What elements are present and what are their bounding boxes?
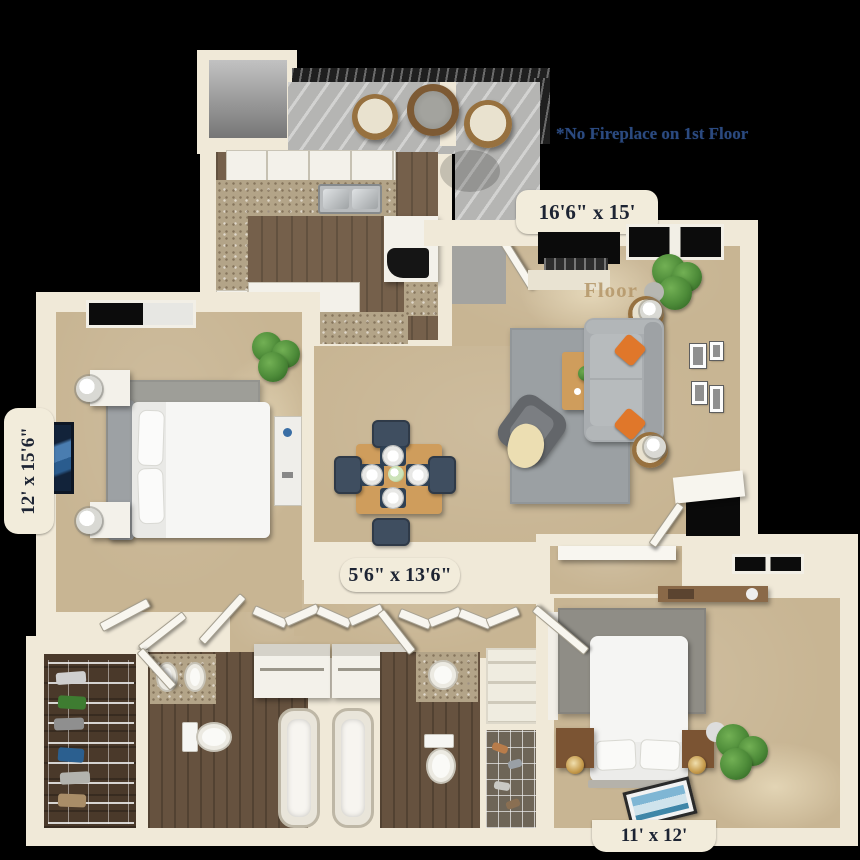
closet-clothes-3 [54, 717, 84, 730]
floor-plan: 5'6" x 13'6" 16'6" x 15' Floor [0, 0, 860, 860]
kitchen-sink [318, 184, 382, 214]
master-lamp-south [76, 508, 102, 534]
bedroom-two-wall-shelf [658, 586, 768, 602]
bedroom-two-closet-shelf [558, 546, 676, 560]
kitchen-counter-left [216, 214, 248, 292]
washer-door-slot [260, 668, 324, 671]
sofa-seat-split [590, 378, 642, 380]
master-dresser [274, 416, 302, 506]
balcony-shadow [440, 150, 500, 192]
bedroom-two-lamp-left [566, 756, 584, 774]
hall-toilet-bowl [426, 748, 456, 784]
master-pillow-bottom [137, 468, 165, 525]
hallway-dimension-tab: 5'6" x 13'6" [340, 558, 460, 592]
hallway-dimension-label: 5'6" x 13'6" [348, 564, 451, 587]
side-table-south-lamp [644, 436, 666, 458]
master-bedroom-dimension-label: 12' x 15'6" [18, 427, 40, 515]
hall-toilet-tank [424, 734, 454, 748]
shelf-round-item [746, 588, 758, 600]
sink-bowl-left [323, 189, 349, 209]
exterior-nook-window [732, 554, 804, 574]
hall-bathtub [332, 708, 374, 828]
master-bedroom-dimension-tab: 12' x 15'6" [4, 408, 54, 534]
patio-chair-left [352, 94, 398, 140]
wall-art-frame-2 [710, 342, 723, 360]
master-pillow-top [137, 410, 165, 467]
plate-east [408, 465, 428, 485]
entry-floor [452, 240, 506, 304]
coat-closet-opening [686, 496, 740, 536]
dining-chair-east [428, 456, 456, 494]
storage-shaft-interior [209, 60, 287, 144]
plate-north [383, 446, 403, 466]
closet-clothes-5 [60, 771, 91, 785]
bedroom-two-bed [590, 636, 688, 782]
fireplace-note: *No Fireplace on 1st Floor [556, 124, 748, 144]
master-bathtub-basin [287, 719, 311, 817]
master-lamp-north [76, 376, 102, 402]
dresser-item-1 [283, 428, 292, 437]
master-plant-leaf-3 [258, 352, 288, 382]
dining-centerpiece [388, 466, 404, 482]
sofa [584, 318, 664, 442]
living-room-east-wall [740, 228, 758, 548]
plate-south [383, 488, 403, 508]
hall-bathtub-basin [341, 719, 365, 817]
coffee-table-cup-1 [574, 388, 581, 395]
dining-chair-west [334, 456, 362, 494]
plate-west [362, 465, 382, 485]
living-room-dimension-label: 16'6" x 15' [539, 200, 636, 225]
kitchen-upper-cabinets [226, 150, 396, 182]
master-bed [132, 402, 270, 538]
master-bathtub [278, 708, 320, 828]
closet-clothes-4 [58, 747, 85, 763]
master-sink-right [184, 662, 206, 692]
closet-bath-divider-wall [136, 650, 148, 846]
patio-chair-right [464, 100, 512, 148]
sink-bowl-right [352, 189, 378, 209]
bedroom-two-pillow-right [639, 739, 681, 771]
bedroom-two-dimension-label: 11' x 12' [621, 825, 688, 847]
kitchen-counter-corner [404, 282, 438, 316]
dining-chair-south [372, 518, 410, 546]
closet-clothes-1 [56, 671, 87, 685]
sofa-back-cushion [644, 322, 662, 438]
bedroom-two-pillow-left [595, 739, 637, 771]
linen-closet-shelves [486, 648, 540, 724]
closet-clothes-2 [58, 695, 87, 709]
dresser-item-2 [282, 472, 293, 478]
wall-art-frame-4 [710, 386, 723, 412]
bedroom-two-lamp-right [688, 756, 706, 774]
washer-control-panel [254, 644, 330, 656]
master-bedroom-window [86, 300, 196, 328]
bedroom-two-plant-leaf-3 [720, 748, 752, 780]
washer [254, 644, 330, 698]
stove-cooktop [387, 248, 429, 278]
balcony-railing-top [292, 68, 550, 83]
closet-clothes-6 [58, 794, 86, 808]
bedroom-two-dimension-tab: 11' x 12' [592, 820, 716, 852]
dining-chair-north [372, 420, 410, 448]
floor-watermark: Floor [584, 278, 638, 303]
wall-art-frame-3 [692, 382, 707, 404]
shelf-books [668, 589, 694, 599]
hall-bath-sink [428, 660, 458, 690]
patio-table [407, 84, 459, 136]
wall-art-frame-1 [690, 344, 706, 368]
master-toilet-bowl [196, 722, 232, 752]
